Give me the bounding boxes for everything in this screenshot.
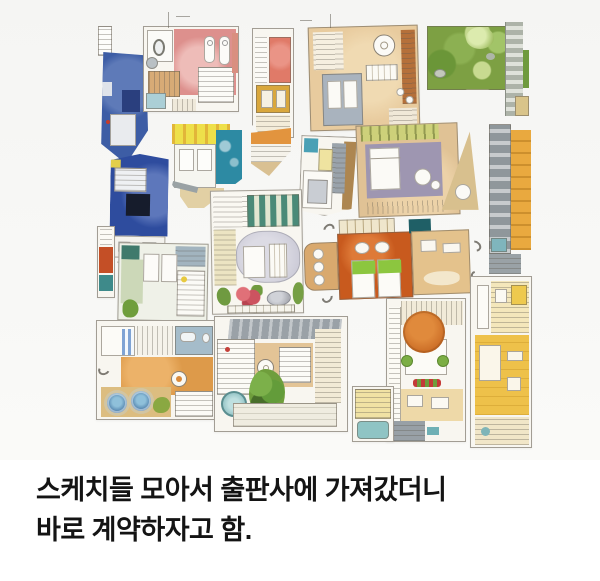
bed-room (101, 326, 135, 356)
bed (197, 149, 212, 171)
pen-curl (321, 221, 337, 236)
red-dot (225, 347, 230, 352)
fixture (495, 289, 507, 303)
bed (179, 149, 194, 171)
pillow (207, 40, 213, 46)
plant-wall (247, 194, 300, 227)
tan-rooms (401, 389, 463, 421)
sketch-amber-gray-strip-plan (489, 120, 533, 276)
white-patch (102, 82, 112, 96)
sketch-pink-suite-plan (143, 26, 239, 112)
fixture (407, 395, 423, 407)
pool (146, 93, 166, 109)
round-table (373, 34, 396, 57)
tan-block (515, 96, 529, 116)
pillow (222, 40, 228, 46)
closet (366, 64, 398, 81)
dark-room (122, 90, 140, 112)
bed (204, 36, 215, 63)
inner-room (261, 90, 273, 108)
entry-room (313, 32, 344, 71)
amber-room (256, 85, 290, 113)
sketch-coral-amber-strip-plan (252, 28, 294, 138)
toilet-fixture (202, 333, 210, 343)
plan-body (109, 153, 168, 236)
round-seat (313, 261, 324, 272)
sketch-red-teal-strip-plan (97, 226, 115, 298)
shower (304, 138, 318, 152)
shrub (217, 287, 231, 305)
terrace (233, 403, 337, 427)
pen-curl (468, 238, 484, 253)
sketch-gold-tower-plan (470, 276, 532, 448)
bed (161, 254, 177, 282)
fixture-column (255, 37, 267, 83)
green-blanket (352, 261, 375, 275)
red-edge (232, 33, 238, 73)
teal-dot (481, 427, 490, 436)
tan-room (251, 162, 291, 176)
inner-room (276, 90, 286, 108)
closet (269, 243, 288, 277)
right-column (315, 329, 341, 403)
caption: 스케치들 모아서 출판사에 가져갔더니 바로 계약하자고 함. (36, 470, 576, 550)
blue-room (322, 73, 363, 126)
sketch-orange-tree-plan (386, 298, 466, 442)
pen-curl (97, 363, 112, 377)
sage-rooms (121, 259, 144, 303)
pen-detail (168, 12, 169, 28)
sketch-orange-wedge-plan (251, 128, 291, 176)
bed-room (302, 170, 333, 209)
mid-section (475, 335, 529, 415)
fixture (420, 239, 436, 252)
teal-room (99, 275, 113, 291)
table-alcove (303, 242, 339, 291)
orange-room (337, 231, 413, 300)
dark-room (126, 194, 150, 216)
pen-detail (176, 16, 190, 17)
grayblue-room (175, 246, 205, 267)
caption-line-2: 바로 계약하자고 함. (36, 510, 576, 550)
hall (137, 326, 173, 355)
hot-tub (107, 393, 127, 413)
gray-column (489, 124, 511, 254)
glass-wall (122, 329, 134, 355)
yellow-room (318, 149, 333, 171)
path-curve (423, 271, 459, 286)
teal-patch (427, 427, 439, 435)
basin (354, 242, 369, 255)
plate (380, 41, 388, 49)
gray-room (391, 421, 425, 441)
sketch-garden-landscape-plan (427, 22, 531, 118)
bed (327, 81, 342, 109)
round-fixture (146, 57, 158, 69)
yellow-rooms (355, 389, 391, 419)
sketch-tan-studio-plan (308, 25, 421, 132)
green-chair (437, 355, 449, 367)
bed (243, 246, 266, 278)
green-blanket (378, 260, 401, 274)
steps (172, 99, 196, 111)
basin (374, 241, 389, 254)
tree-canopy (403, 311, 445, 353)
round-table (414, 168, 432, 186)
white-room (251, 144, 291, 162)
fixture (442, 243, 460, 254)
caption-line-1: 스케치들 모아서 출판사에 가져갔더니 (36, 470, 576, 510)
rock (434, 69, 446, 78)
fixture (431, 397, 449, 409)
yellow-dot (181, 276, 187, 282)
pool (357, 421, 389, 439)
round-spa (455, 184, 471, 200)
cream-column (214, 229, 237, 285)
upper-rooms (491, 281, 529, 333)
upper-rooms (213, 193, 248, 228)
rock (486, 53, 495, 60)
plant (153, 397, 170, 413)
terrace (227, 304, 295, 313)
bed-green (377, 259, 401, 298)
sketch-mauve-suite-plan (357, 122, 483, 220)
mauve-room (365, 142, 443, 199)
bed-green (351, 260, 375, 299)
pillow-line (371, 157, 401, 159)
hot-tub (131, 391, 151, 411)
red-dot (106, 120, 110, 124)
bed (143, 254, 159, 282)
tall-closet (477, 285, 489, 329)
red-room (99, 247, 113, 273)
round-seat (313, 248, 324, 259)
lower-rooms (175, 391, 213, 417)
floorplan-collage (0, 0, 600, 460)
pool (491, 238, 507, 252)
bed-platform (279, 347, 311, 383)
table-center (176, 376, 182, 382)
flower-bed (413, 379, 441, 387)
ladder-detail (98, 26, 112, 56)
pen-detail (300, 20, 312, 21)
fixture (507, 377, 521, 391)
tree-canopy (466, 27, 494, 49)
sketch-orange-twinbed-plan (302, 211, 481, 307)
round-table (171, 371, 187, 387)
sketch-gray-suite-plan (299, 135, 358, 217)
tub-icon (153, 39, 165, 56)
sketch-green-courtyard-plan (210, 189, 304, 315)
bathroom (175, 326, 213, 355)
teal-room (121, 245, 139, 259)
plants (122, 299, 138, 317)
fixture (507, 351, 523, 361)
top-marks (100, 229, 112, 245)
sketch-pool-annex-plan (352, 386, 394, 442)
sketch-tree-courtyard-plan (214, 316, 348, 432)
bed (219, 36, 230, 65)
bed (307, 179, 328, 204)
round-seat (314, 274, 325, 285)
yellow-corner (111, 159, 121, 167)
teal-room (216, 130, 242, 184)
pen-detail (330, 14, 331, 28)
tan-wing (411, 229, 471, 295)
round-stool (430, 180, 440, 190)
sketch-terrace-hottub-plan (96, 320, 218, 420)
yardgreen-band (360, 124, 438, 142)
rug-area (236, 230, 301, 283)
bed (369, 147, 400, 190)
shrub (293, 282, 304, 304)
sketch-blue-tower-plan (96, 26, 150, 164)
lower-gray (489, 254, 521, 274)
yellow-block (511, 285, 527, 305)
green-chair (401, 355, 413, 367)
tub-fixture (180, 332, 196, 342)
sketch-sage-suite-plan (117, 242, 208, 322)
amber-column (511, 130, 531, 250)
white-room (198, 67, 234, 103)
hedge-strip (523, 50, 529, 88)
bed (343, 80, 358, 108)
bed-rooms (174, 144, 216, 188)
pen-curl (320, 289, 335, 305)
bed (479, 345, 501, 381)
bed-room (110, 114, 136, 146)
bed-room (114, 168, 146, 193)
coral-room (269, 37, 291, 83)
